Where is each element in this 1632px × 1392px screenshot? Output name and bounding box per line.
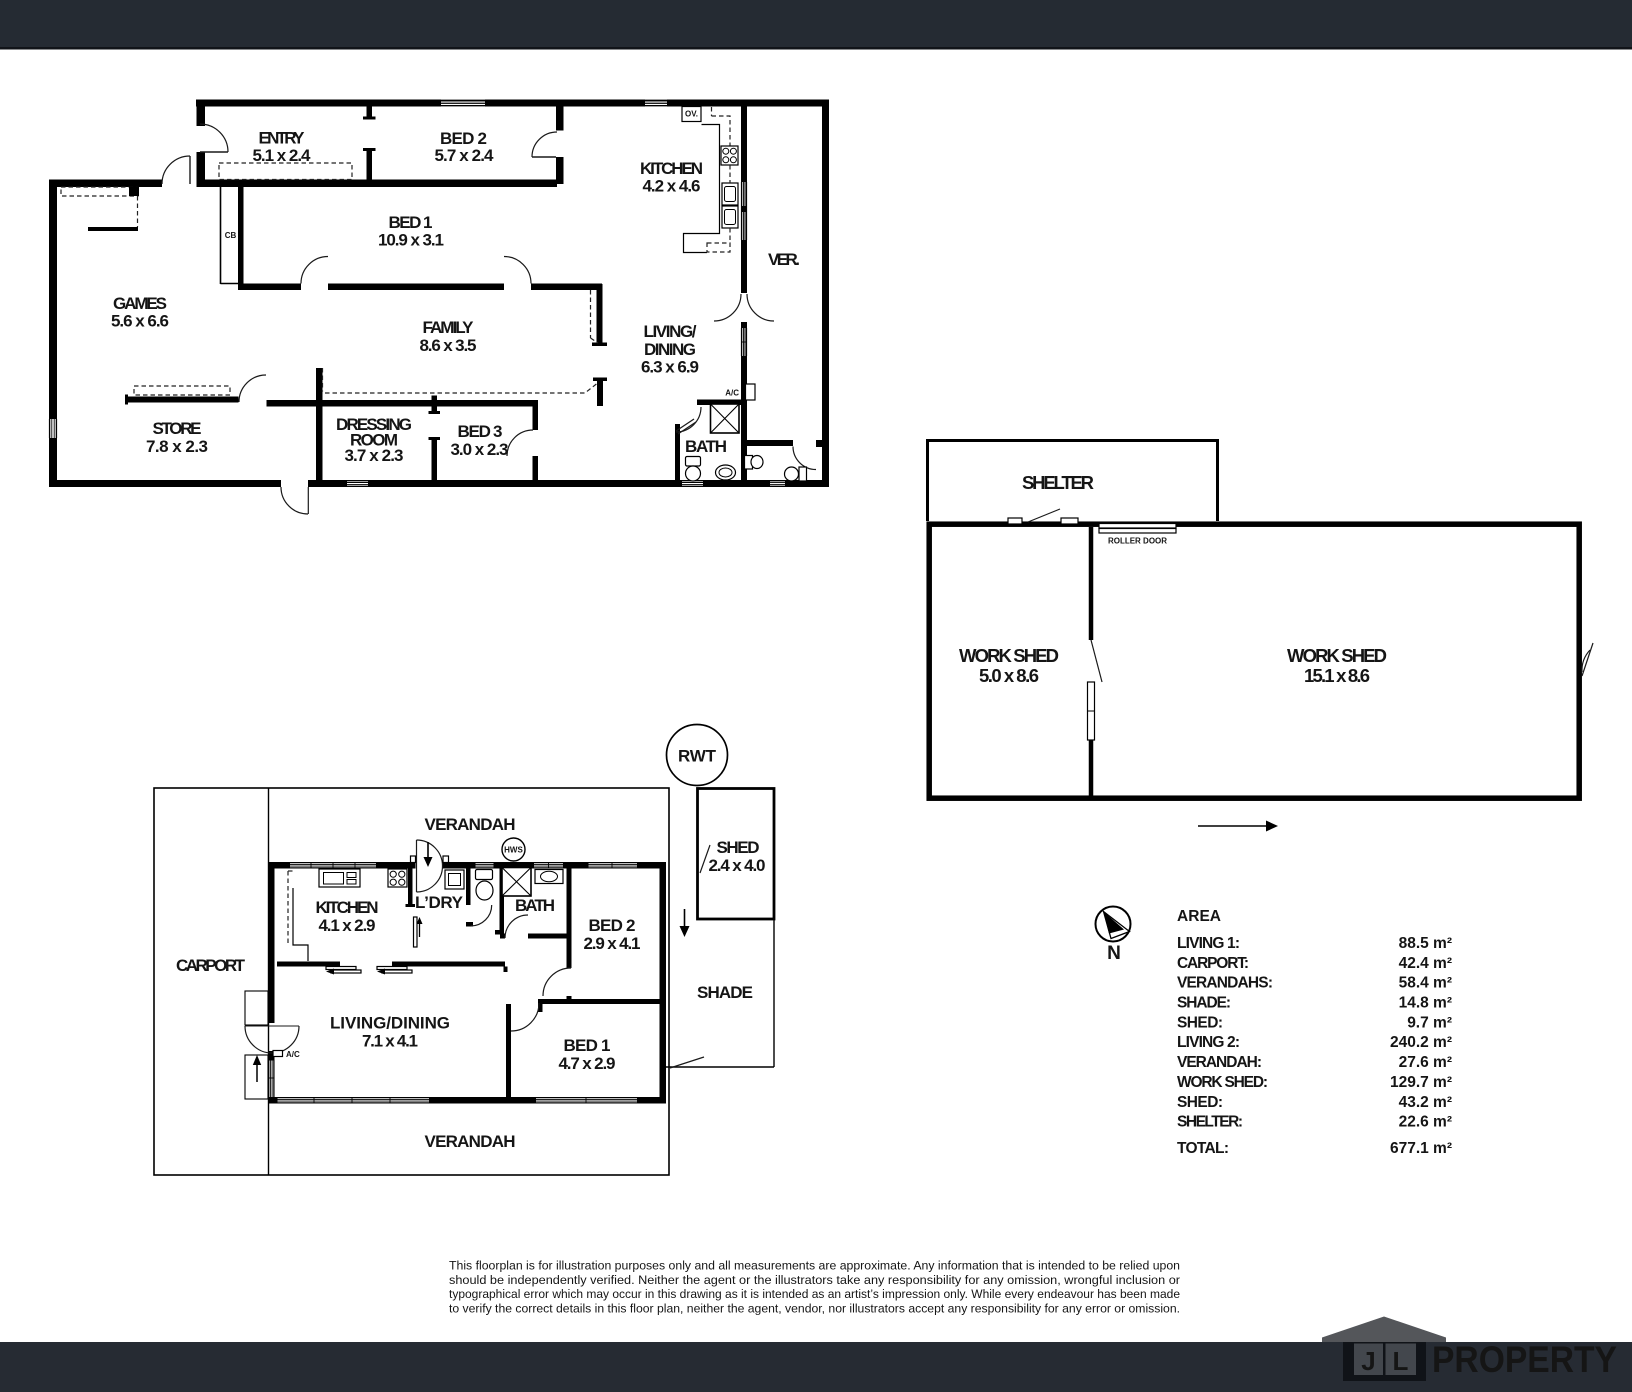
- svg-text:LIVING 2:: LIVING 2:: [1177, 1034, 1240, 1051]
- svg-text:BED 1: BED 1: [389, 213, 433, 232]
- svg-text:J: J: [1361, 1346, 1375, 1376]
- svg-text:STORE: STORE: [153, 419, 202, 438]
- svg-text:ENTRY: ENTRY: [259, 129, 306, 148]
- svg-text:BED 2: BED 2: [589, 916, 636, 935]
- svg-text:15.1 x 8.6: 15.1 x 8.6: [1304, 665, 1370, 686]
- svg-text:4.7 x 2.9: 4.7 x 2.9: [559, 1054, 616, 1073]
- svg-text:OV.: OV.: [685, 110, 698, 119]
- svg-text:PROPERTY: PROPERTY: [1432, 1339, 1617, 1380]
- svg-text:LIVING/: LIVING/: [644, 322, 697, 341]
- svg-text:SHED:: SHED:: [1177, 1094, 1223, 1111]
- svg-text:L: L: [1393, 1346, 1409, 1376]
- svg-text:RWT: RWT: [678, 747, 717, 766]
- svg-text:VERANDAHS:: VERANDAHS:: [1177, 975, 1273, 992]
- svg-text:WORK SHED: WORK SHED: [959, 645, 1059, 666]
- svg-text:VERANDAH: VERANDAH: [425, 1132, 516, 1151]
- svg-text:ROLLER DOOR: ROLLER DOOR: [1108, 537, 1167, 546]
- svg-text:AREA: AREA: [1177, 908, 1221, 925]
- svg-text:VER.: VER.: [768, 250, 800, 269]
- svg-text:SHED: SHED: [717, 838, 760, 857]
- svg-text:43.2 m²: 43.2 m²: [1399, 1094, 1452, 1111]
- svg-text:SHELTER:: SHELTER:: [1177, 1114, 1243, 1131]
- svg-text:SHADE:: SHADE:: [1177, 995, 1231, 1012]
- svg-text:VERANDAH:: VERANDAH:: [1177, 1054, 1262, 1071]
- svg-text:2.4 x 4.0: 2.4 x 4.0: [709, 856, 766, 875]
- svg-text:VERANDAH: VERANDAH: [425, 815, 516, 834]
- svg-text:WORK SHED:: WORK SHED:: [1177, 1074, 1268, 1091]
- svg-text:129.7 m²: 129.7 m²: [1390, 1074, 1452, 1091]
- svg-text:TOTAL:: TOTAL:: [1177, 1140, 1229, 1157]
- svg-text:WORK SHED: WORK SHED: [1287, 645, 1387, 666]
- svg-text:8.6 x 3.5: 8.6 x 3.5: [420, 336, 477, 355]
- svg-text:DINING: DINING: [644, 340, 696, 359]
- svg-text:22.6 m²: 22.6 m²: [1399, 1114, 1452, 1131]
- svg-text:KITCHEN: KITCHEN: [316, 898, 379, 917]
- svg-text:A/C: A/C: [725, 389, 739, 398]
- svg-text:typographical error which may: typographical error which may occur in t…: [449, 1287, 1180, 1301]
- svg-text:This floorplan is for illustra: This floorplan is for illustration purpo…: [449, 1259, 1180, 1273]
- svg-text:to verify the correct details: to verify the correct details in this fl…: [449, 1301, 1180, 1315]
- svg-text:7.1 x 4.1: 7.1 x 4.1: [362, 1032, 418, 1051]
- svg-text:27.6 m²: 27.6 m²: [1399, 1054, 1452, 1071]
- svg-text:4.1 x 2.9: 4.1 x 2.9: [319, 916, 376, 935]
- svg-text:FAMILY: FAMILY: [423, 318, 475, 337]
- svg-text:should be independently verifi: should be independently verified. Neithe…: [449, 1273, 1180, 1287]
- svg-text:KITCHEN: KITCHEN: [640, 159, 703, 178]
- svg-text:58.4 m²: 58.4 m²: [1399, 975, 1452, 992]
- svg-text:BATH: BATH: [685, 437, 727, 456]
- svg-text:2.9 x 4.1: 2.9 x 4.1: [584, 934, 641, 953]
- svg-text:9.7 m²: 9.7 m²: [1407, 1014, 1452, 1031]
- svg-text:88.5 m²: 88.5 m²: [1399, 935, 1452, 952]
- svg-text:L’DRY: L’DRY: [415, 893, 464, 912]
- svg-text:LIVING 1:: LIVING 1:: [1177, 935, 1240, 952]
- svg-text:SHELTER: SHELTER: [1022, 472, 1094, 493]
- svg-text:10.9 x 3.1: 10.9 x 3.1: [378, 231, 444, 250]
- svg-text:BED 1: BED 1: [564, 1036, 611, 1055]
- svg-text:5.0 x 8.6: 5.0 x 8.6: [979, 665, 1039, 686]
- svg-text:CARPORT: CARPORT: [176, 956, 246, 975]
- svg-text:5.1 x 2.4: 5.1 x 2.4: [253, 146, 312, 165]
- svg-text:4.2 x 4.6: 4.2 x 4.6: [643, 177, 701, 196]
- svg-text:5.6 x 6.6: 5.6 x 6.6: [111, 312, 169, 331]
- svg-text:LIVING/DINING: LIVING/DINING: [330, 1014, 450, 1033]
- svg-text:677.1 m²: 677.1 m²: [1390, 1140, 1452, 1157]
- svg-text:CARPORT:: CARPORT:: [1177, 955, 1249, 972]
- svg-text:6.3 x 6.9: 6.3 x 6.9: [641, 358, 699, 377]
- svg-text:N: N: [1107, 943, 1121, 964]
- svg-text:3.7 x 2.3: 3.7 x 2.3: [345, 446, 404, 465]
- svg-text:BATH: BATH: [515, 896, 555, 915]
- svg-text:BED 3: BED 3: [458, 422, 503, 441]
- svg-text:3.0 x 2.3: 3.0 x 2.3: [451, 440, 509, 459]
- svg-text:14.8 m²: 14.8 m²: [1399, 995, 1452, 1012]
- svg-text:240.2 m²: 240.2 m²: [1390, 1034, 1452, 1051]
- svg-text:A/C: A/C: [286, 1050, 300, 1059]
- svg-text:7.8 x 2.3: 7.8 x 2.3: [146, 437, 208, 456]
- svg-text:GAMES: GAMES: [113, 294, 167, 313]
- svg-text:42.4 m²: 42.4 m²: [1399, 955, 1452, 972]
- svg-text:SHED:: SHED:: [1177, 1014, 1223, 1031]
- svg-text:CB: CB: [225, 231, 237, 240]
- svg-text:SHADE: SHADE: [697, 983, 753, 1002]
- svg-text:HWS: HWS: [504, 846, 523, 855]
- svg-text:5.7 x 2.4: 5.7 x 2.4: [435, 146, 495, 165]
